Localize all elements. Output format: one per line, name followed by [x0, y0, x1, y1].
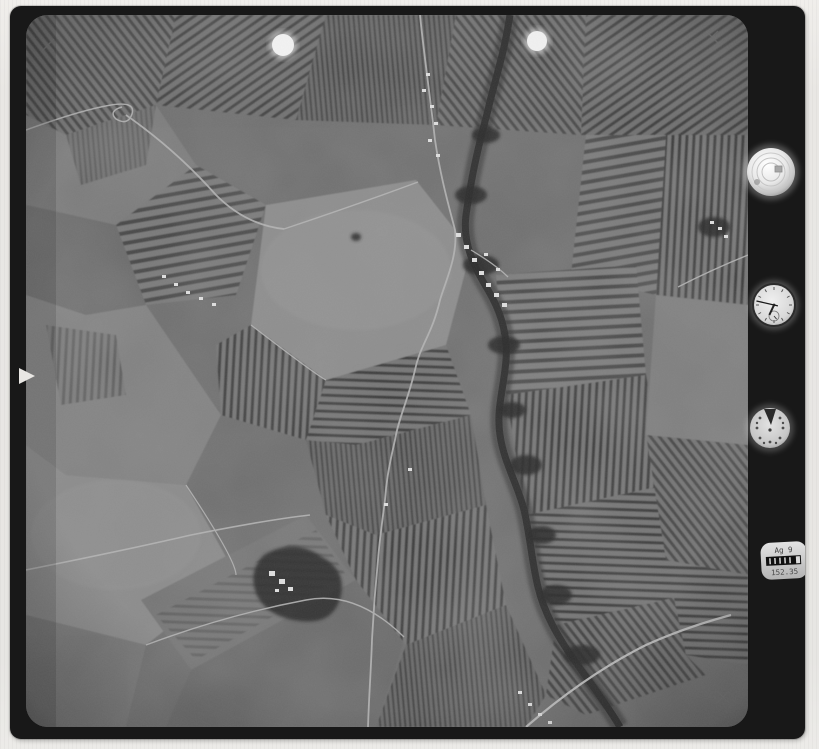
- scanned-film-page: { "scene": { "kind": "vintage monochrome…: [0, 0, 819, 749]
- level-window: [775, 166, 782, 172]
- instrument-strip: Ag 9 152.35: [743, 144, 805, 580]
- film-grain: [26, 15, 748, 727]
- altimeter-center-pin: [768, 428, 771, 431]
- clock-center-pin: [773, 304, 776, 307]
- aerial-photo: [26, 15, 748, 727]
- counter-label: Ag 9: [774, 545, 793, 555]
- clock-instrument: [749, 280, 799, 330]
- frame-counter-panel: Ag 9 152.35: [760, 541, 805, 580]
- bubble-level-instrument: [743, 144, 799, 200]
- altimeter-instrument: [746, 404, 794, 452]
- counter-value: 152.35: [771, 567, 799, 577]
- film-negative-frame: Ag 9 152.35: [10, 6, 805, 739]
- aerial-photo-canvas: Ag 9 152.35: [10, 6, 805, 739]
